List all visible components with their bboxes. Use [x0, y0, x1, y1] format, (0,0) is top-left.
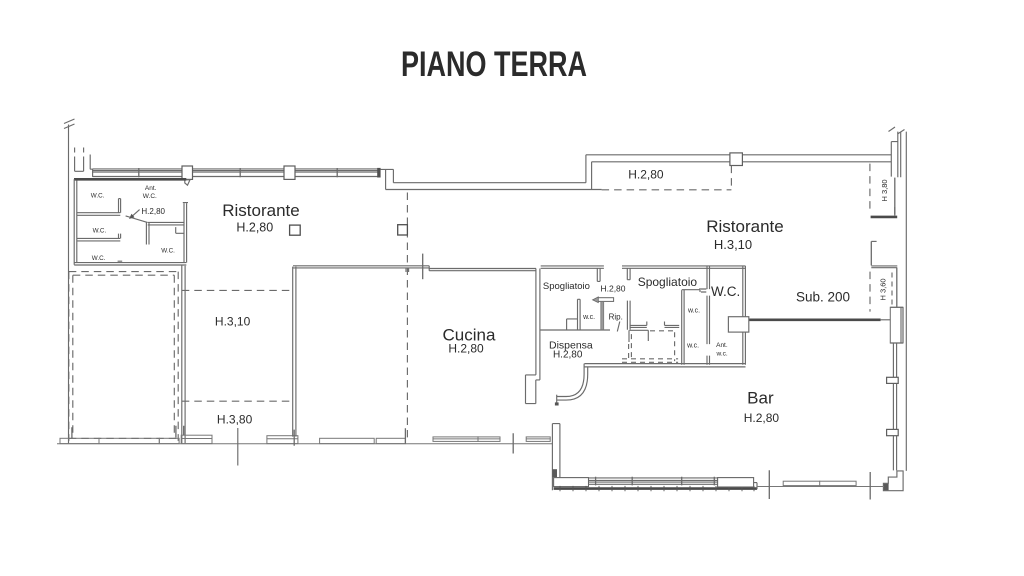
svg-text:W.C.: W.C.: [143, 193, 157, 200]
svg-text:w.c.: w.c.: [686, 343, 699, 350]
svg-text:w.c.: w.c.: [687, 308, 700, 315]
svg-text:PIANO TERRA: PIANO TERRA: [401, 45, 587, 84]
svg-text:W.C.: W.C.: [92, 255, 106, 262]
svg-text:W.C.: W.C.: [93, 228, 107, 235]
svg-text:Sub. 200: Sub. 200: [796, 290, 850, 305]
svg-text:H.2,80: H.2,80: [744, 411, 780, 425]
svg-text:H.3,10: H.3,10: [714, 237, 752, 252]
svg-text:H 3,60: H 3,60: [879, 278, 888, 300]
svg-text:Ant.: Ant.: [145, 185, 157, 192]
svg-text:H.2,80: H.2,80: [628, 168, 664, 182]
svg-text:H.3,10: H.3,10: [215, 315, 251, 329]
svg-text:Rip.: Rip.: [609, 313, 623, 322]
svg-text:H.2,80: H.2,80: [236, 221, 273, 235]
svg-text:H.3,80: H.3,80: [217, 413, 253, 427]
svg-text:Spogliatoio: Spogliatoio: [638, 275, 698, 289]
svg-text:Ant.: Ant.: [716, 342, 728, 349]
svg-text:W.C.: W.C.: [91, 193, 105, 200]
svg-text:Ristorante: Ristorante: [222, 201, 299, 220]
svg-text:Bar: Bar: [747, 389, 774, 408]
svg-text:H.2,80: H.2,80: [448, 342, 484, 356]
svg-text:Spogliatoio: Spogliatoio: [543, 281, 590, 292]
svg-text:W.C.: W.C.: [711, 284, 740, 299]
svg-text:w.c.: w.c.: [582, 314, 595, 321]
svg-text:H.2,80: H.2,80: [553, 350, 583, 361]
svg-text:Ristorante: Ristorante: [706, 217, 783, 236]
svg-text:W.C.: W.C.: [161, 248, 175, 255]
svg-text:H 3,80: H 3,80: [880, 179, 889, 201]
svg-text:H.2,80: H.2,80: [600, 284, 625, 294]
svg-text:H.2,80: H.2,80: [141, 207, 165, 216]
svg-text:w.c.: w.c.: [715, 351, 727, 358]
